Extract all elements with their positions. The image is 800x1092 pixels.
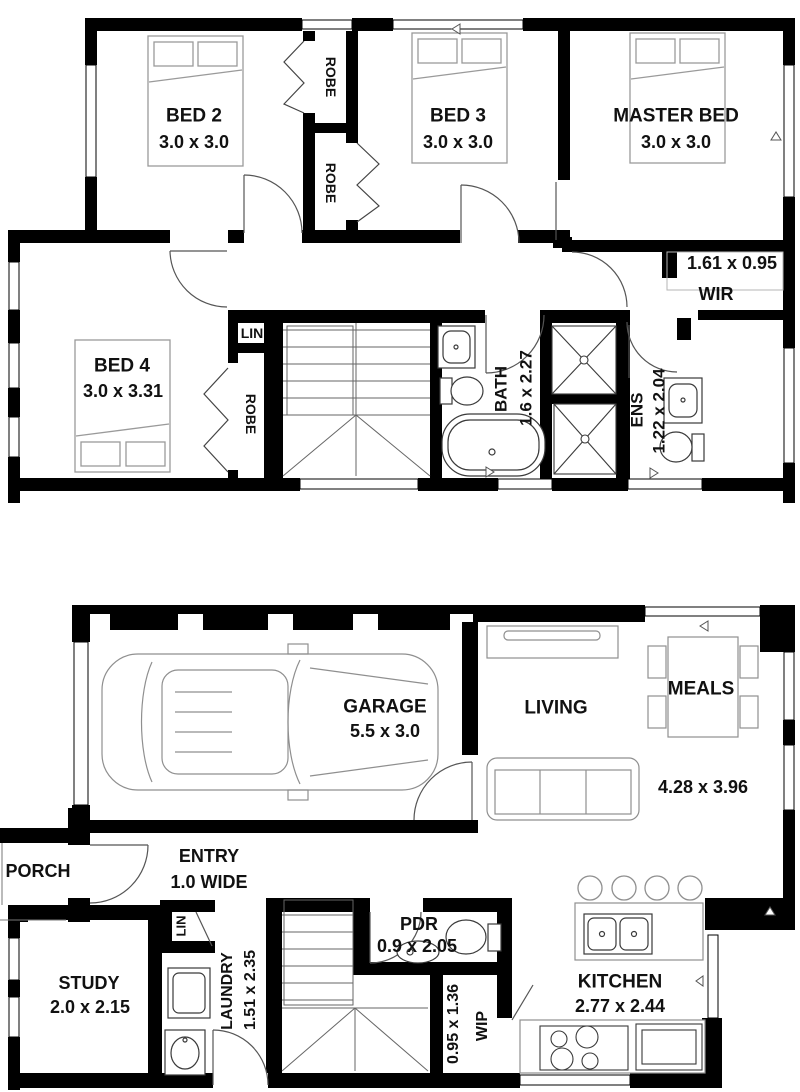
room-dims-bed3: 3.0 x 3.0	[423, 133, 493, 151]
vanity-sink-icon	[438, 326, 475, 368]
room-label-pdr: PDR	[400, 915, 438, 933]
sofa-icon	[487, 758, 639, 820]
laundry-tub-icon	[165, 1030, 205, 1075]
room-dims-bath: 1.6 x 2.27	[518, 350, 535, 426]
room-label-lin-ground: LIN	[175, 916, 188, 937]
room-dims-entry: 1.0 WIDE	[170, 873, 247, 891]
toilet-icon	[440, 377, 483, 405]
room-label-bed2: BED 2	[166, 107, 222, 126]
vanity-sink-icon	[664, 378, 702, 423]
room-label-porch: PORCH	[5, 862, 70, 880]
cooktop-icon	[540, 1026, 628, 1070]
room-label-living: LIVING	[524, 699, 587, 718]
room-label-study: STUDY	[58, 974, 119, 992]
room-label-kitchen: KITCHEN	[578, 973, 662, 992]
room-label-robe-mid: ROBE	[324, 163, 338, 203]
room-label-ens: ENS	[629, 393, 646, 428]
marker-triangle-icon	[452, 24, 781, 986]
room-dims-living-meals: 4.28 x 3.96	[658, 778, 748, 796]
room-dims-ens: 1.22 x 2.04	[651, 368, 668, 453]
room-dims-bed4: 3.0 x 3.31	[83, 382, 163, 400]
room-dims-kitchen: 2.77 x 2.44	[575, 997, 665, 1015]
room-label-wir: WIR	[699, 285, 734, 303]
room-label-laundry: LAUNDRY	[220, 952, 236, 1030]
room-label-wip: WIP	[475, 1011, 491, 1041]
room-label-master-bed: MASTER BED	[613, 107, 739, 126]
room-dims-garage: 5.5 x 3.0	[350, 722, 420, 740]
room-label-robe-bed4: ROBE	[244, 394, 258, 434]
oven-icon	[636, 1024, 702, 1070]
room-dims-laundry: 1.51 x 2.35	[243, 950, 259, 1030]
room-dims-study: 2.0 x 2.15	[50, 998, 130, 1016]
room-dims-master-bed: 3.0 x 3.0	[641, 133, 711, 151]
bar-stool-icon	[578, 876, 702, 900]
room-label-robe-top: ROBE	[324, 57, 338, 97]
room-label-meals: MEALS	[668, 680, 735, 699]
washing-machine-icon	[168, 968, 210, 1018]
room-dims-pdr: 0.9 x 2.05	[377, 937, 457, 955]
room-dims-wir: 1.61 x 0.95	[687, 254, 777, 272]
room-dims-bed2: 3.0 x 3.0	[159, 133, 229, 151]
tv-unit-icon	[487, 626, 618, 658]
kitchen-sink-icon	[584, 914, 652, 954]
room-dims-wip: 0.95 x 1.36	[446, 984, 462, 1064]
room-label-bath: BATH	[493, 366, 510, 412]
room-label-entry: ENTRY	[179, 847, 239, 865]
room-label-lin-upper: LIN	[241, 326, 264, 340]
floor-plan-page: BED 2 3.0 x 3.0 ROBE ROBE BED 3 3.0 x 3.…	[0, 0, 800, 1092]
shower-icon	[554, 404, 616, 474]
shower-icon	[552, 326, 616, 394]
stairs-icon	[283, 323, 430, 476]
room-label-bed4: BED 4	[94, 357, 150, 376]
room-label-garage: GARAGE	[343, 698, 426, 717]
room-label-bed3: BED 3	[430, 107, 486, 126]
